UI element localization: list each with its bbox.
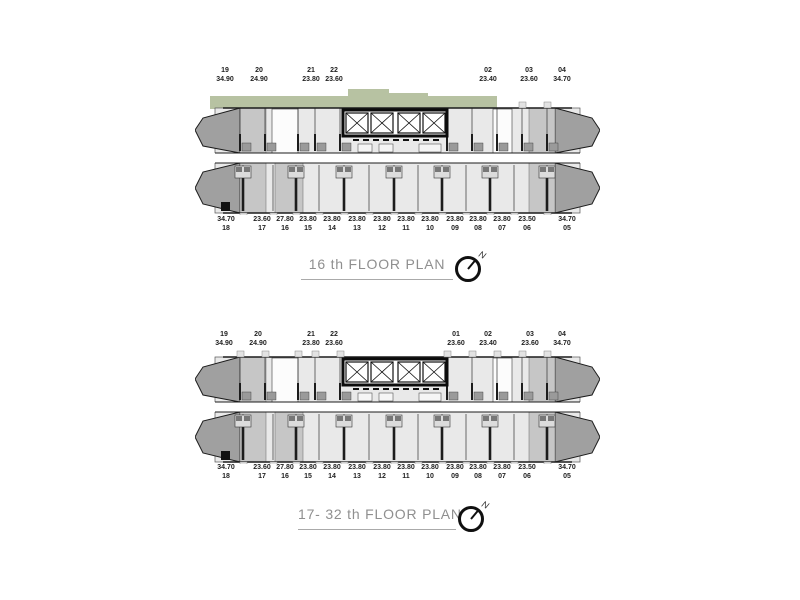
unit-area: 23.80 xyxy=(493,215,511,224)
unit-number: 06 xyxy=(523,224,531,233)
unit-label: 23.80 07 xyxy=(493,463,511,481)
unit-area: 34.70 xyxy=(558,463,576,472)
unit-number: 17 xyxy=(258,224,266,233)
unit-label: 27.80 16 xyxy=(276,215,294,233)
unit-label: 19 34.90 xyxy=(216,66,234,84)
plan-title-17-32: 17- 32 th FLOOR PLAN xyxy=(298,506,456,530)
svg-text:N: N xyxy=(477,249,488,261)
unit-number: 18 xyxy=(222,472,230,481)
unit-area: 23.80 xyxy=(397,215,415,224)
brochure-page: 19 34.90 20 24.90 21 23.80 22 23.60 xyxy=(0,0,800,600)
unit-label: 23.80 08 xyxy=(469,215,487,233)
bottom-unit-labels-17-32: 34.70 18 23.60 17 27.80 16 23.80 15 xyxy=(0,463,800,483)
unit-area: 34.90 xyxy=(216,75,234,84)
unit-label: 34.70 05 xyxy=(558,215,576,233)
unit-number: 08 xyxy=(474,472,482,481)
unit-label: 03 23.60 xyxy=(520,66,538,84)
unit-number: 22 xyxy=(330,66,338,75)
unit-label: 23.80 14 xyxy=(323,215,341,233)
unit-number: 16 xyxy=(281,472,289,481)
unit-area: 23.80 xyxy=(421,215,439,224)
unit-area: 23.80 xyxy=(302,75,320,84)
unit-number: 14 xyxy=(328,472,336,481)
unit-label: 23.80 09 xyxy=(446,215,464,233)
bottom-unit-labels-16: 34.70 18 23.60 17 27.80 16 23.80 15 xyxy=(0,215,800,235)
unit-label: 23.80 08 xyxy=(469,463,487,481)
plan-title-text: 17- 32 th FLOOR PLAN xyxy=(298,506,462,522)
unit-label: 34.70 18 xyxy=(217,215,235,233)
unit-area: 23.80 xyxy=(446,463,464,472)
floor-plan-drawing-17-32 xyxy=(195,337,600,464)
unit-number: 09 xyxy=(451,224,459,233)
unit-number: 10 xyxy=(426,472,434,481)
unit-label: 23.80 11 xyxy=(397,463,415,481)
unit-area: 23.80 xyxy=(493,463,511,472)
unit-label: 23.80 10 xyxy=(421,463,439,481)
unit-label: 23.80 12 xyxy=(373,215,391,233)
unit-area: 34.70 xyxy=(217,463,235,472)
unit-number: 15 xyxy=(304,472,312,481)
unit-area: 23.80 xyxy=(373,463,391,472)
unit-number: 05 xyxy=(563,224,571,233)
unit-area: 23.80 xyxy=(421,463,439,472)
unit-number: 15 xyxy=(304,224,312,233)
unit-label: 23.80 13 xyxy=(348,215,366,233)
unit-number: 11 xyxy=(402,224,409,233)
floor-plan-drawing-16 xyxy=(195,88,600,215)
unit-area: 23.80 xyxy=(373,215,391,224)
unit-number: 14 xyxy=(328,224,336,233)
unit-label: 22 23.60 xyxy=(325,66,343,84)
unit-label: 21 23.80 xyxy=(302,66,320,84)
unit-label: 34.70 05 xyxy=(558,463,576,481)
unit-label: 23.80 15 xyxy=(299,215,317,233)
unit-area: 34.70 xyxy=(553,75,571,84)
unit-number: 17 xyxy=(258,472,266,481)
unit-label: 20 24.90 xyxy=(250,66,268,84)
unit-area: 23.80 xyxy=(323,463,341,472)
unit-number: 06 xyxy=(523,472,531,481)
unit-number: 13 xyxy=(353,224,361,233)
unit-number: 04 xyxy=(558,66,566,75)
unit-number: 08 xyxy=(474,224,482,233)
unit-label: 23.80 09 xyxy=(446,463,464,481)
unit-area: 27.80 xyxy=(276,463,294,472)
top-unit-labels-16: 19 34.90 20 24.90 21 23.80 22 23.60 xyxy=(0,66,800,86)
unit-label: 23.60 17 xyxy=(253,463,271,481)
unit-area: 23.80 xyxy=(299,215,317,224)
unit-label: 23.80 14 xyxy=(323,463,341,481)
unit-label: 04 34.70 xyxy=(553,66,571,84)
unit-area: 23.80 xyxy=(323,215,341,224)
unit-number: 21 xyxy=(307,66,315,75)
unit-area: 23.80 xyxy=(469,215,487,224)
unit-number: 07 xyxy=(498,472,506,481)
unit-area: 34.70 xyxy=(217,215,235,224)
unit-number: 16 xyxy=(281,224,289,233)
unit-label: 23.80 15 xyxy=(299,463,317,481)
unit-area: 23.80 xyxy=(299,463,317,472)
unit-label: 23.80 07 xyxy=(493,215,511,233)
unit-label: 23.80 12 xyxy=(373,463,391,481)
unit-area: 23.60 xyxy=(253,215,271,224)
unit-number: 09 xyxy=(451,472,459,481)
unit-number: 03 xyxy=(525,66,533,75)
unit-area: 23.80 xyxy=(469,463,487,472)
unit-area: 23.40 xyxy=(479,75,497,84)
unit-label: 34.70 18 xyxy=(217,463,235,481)
unit-number: 11 xyxy=(402,472,409,481)
unit-area: 23.60 xyxy=(325,75,343,84)
unit-number: 20 xyxy=(255,66,263,75)
plan-title-text: 16 th FLOOR PLAN xyxy=(309,256,446,272)
plan-title-16: 16 th FLOOR PLAN xyxy=(301,256,453,280)
unit-label: 23.80 13 xyxy=(348,463,366,481)
unit-number: 10 xyxy=(426,224,434,233)
unit-label: 27.80 16 xyxy=(276,463,294,481)
unit-area: 23.60 xyxy=(520,75,538,84)
unit-number: 18 xyxy=(222,224,230,233)
unit-area: 34.70 xyxy=(558,215,576,224)
unit-number: 02 xyxy=(484,66,492,75)
unit-label: 23.80 10 xyxy=(421,215,439,233)
unit-number: 12 xyxy=(378,472,386,481)
compass-north-icon: N xyxy=(457,494,499,538)
unit-area: 23.60 xyxy=(253,463,271,472)
unit-label: 23.50 06 xyxy=(518,215,536,233)
unit-area: 23.50 xyxy=(518,215,536,224)
unit-number: 19 xyxy=(221,66,229,75)
unit-number: 13 xyxy=(353,472,361,481)
unit-number: 12 xyxy=(378,224,386,233)
unit-area: 24.90 xyxy=(250,75,268,84)
unit-area: 23.80 xyxy=(446,215,464,224)
unit-area: 27.80 xyxy=(276,215,294,224)
svg-text:N: N xyxy=(480,499,491,511)
unit-number: 07 xyxy=(498,224,506,233)
unit-area: 23.80 xyxy=(397,463,415,472)
compass-north-icon: N xyxy=(454,244,496,288)
unit-label: 02 23.40 xyxy=(479,66,497,84)
unit-label: 23.60 17 xyxy=(253,215,271,233)
unit-area: 23.80 xyxy=(348,215,366,224)
unit-label: 23.80 11 xyxy=(397,215,415,233)
unit-number: 05 xyxy=(563,472,571,481)
unit-label: 23.50 06 xyxy=(518,463,536,481)
unit-area: 23.80 xyxy=(348,463,366,472)
unit-area: 23.50 xyxy=(518,463,536,472)
